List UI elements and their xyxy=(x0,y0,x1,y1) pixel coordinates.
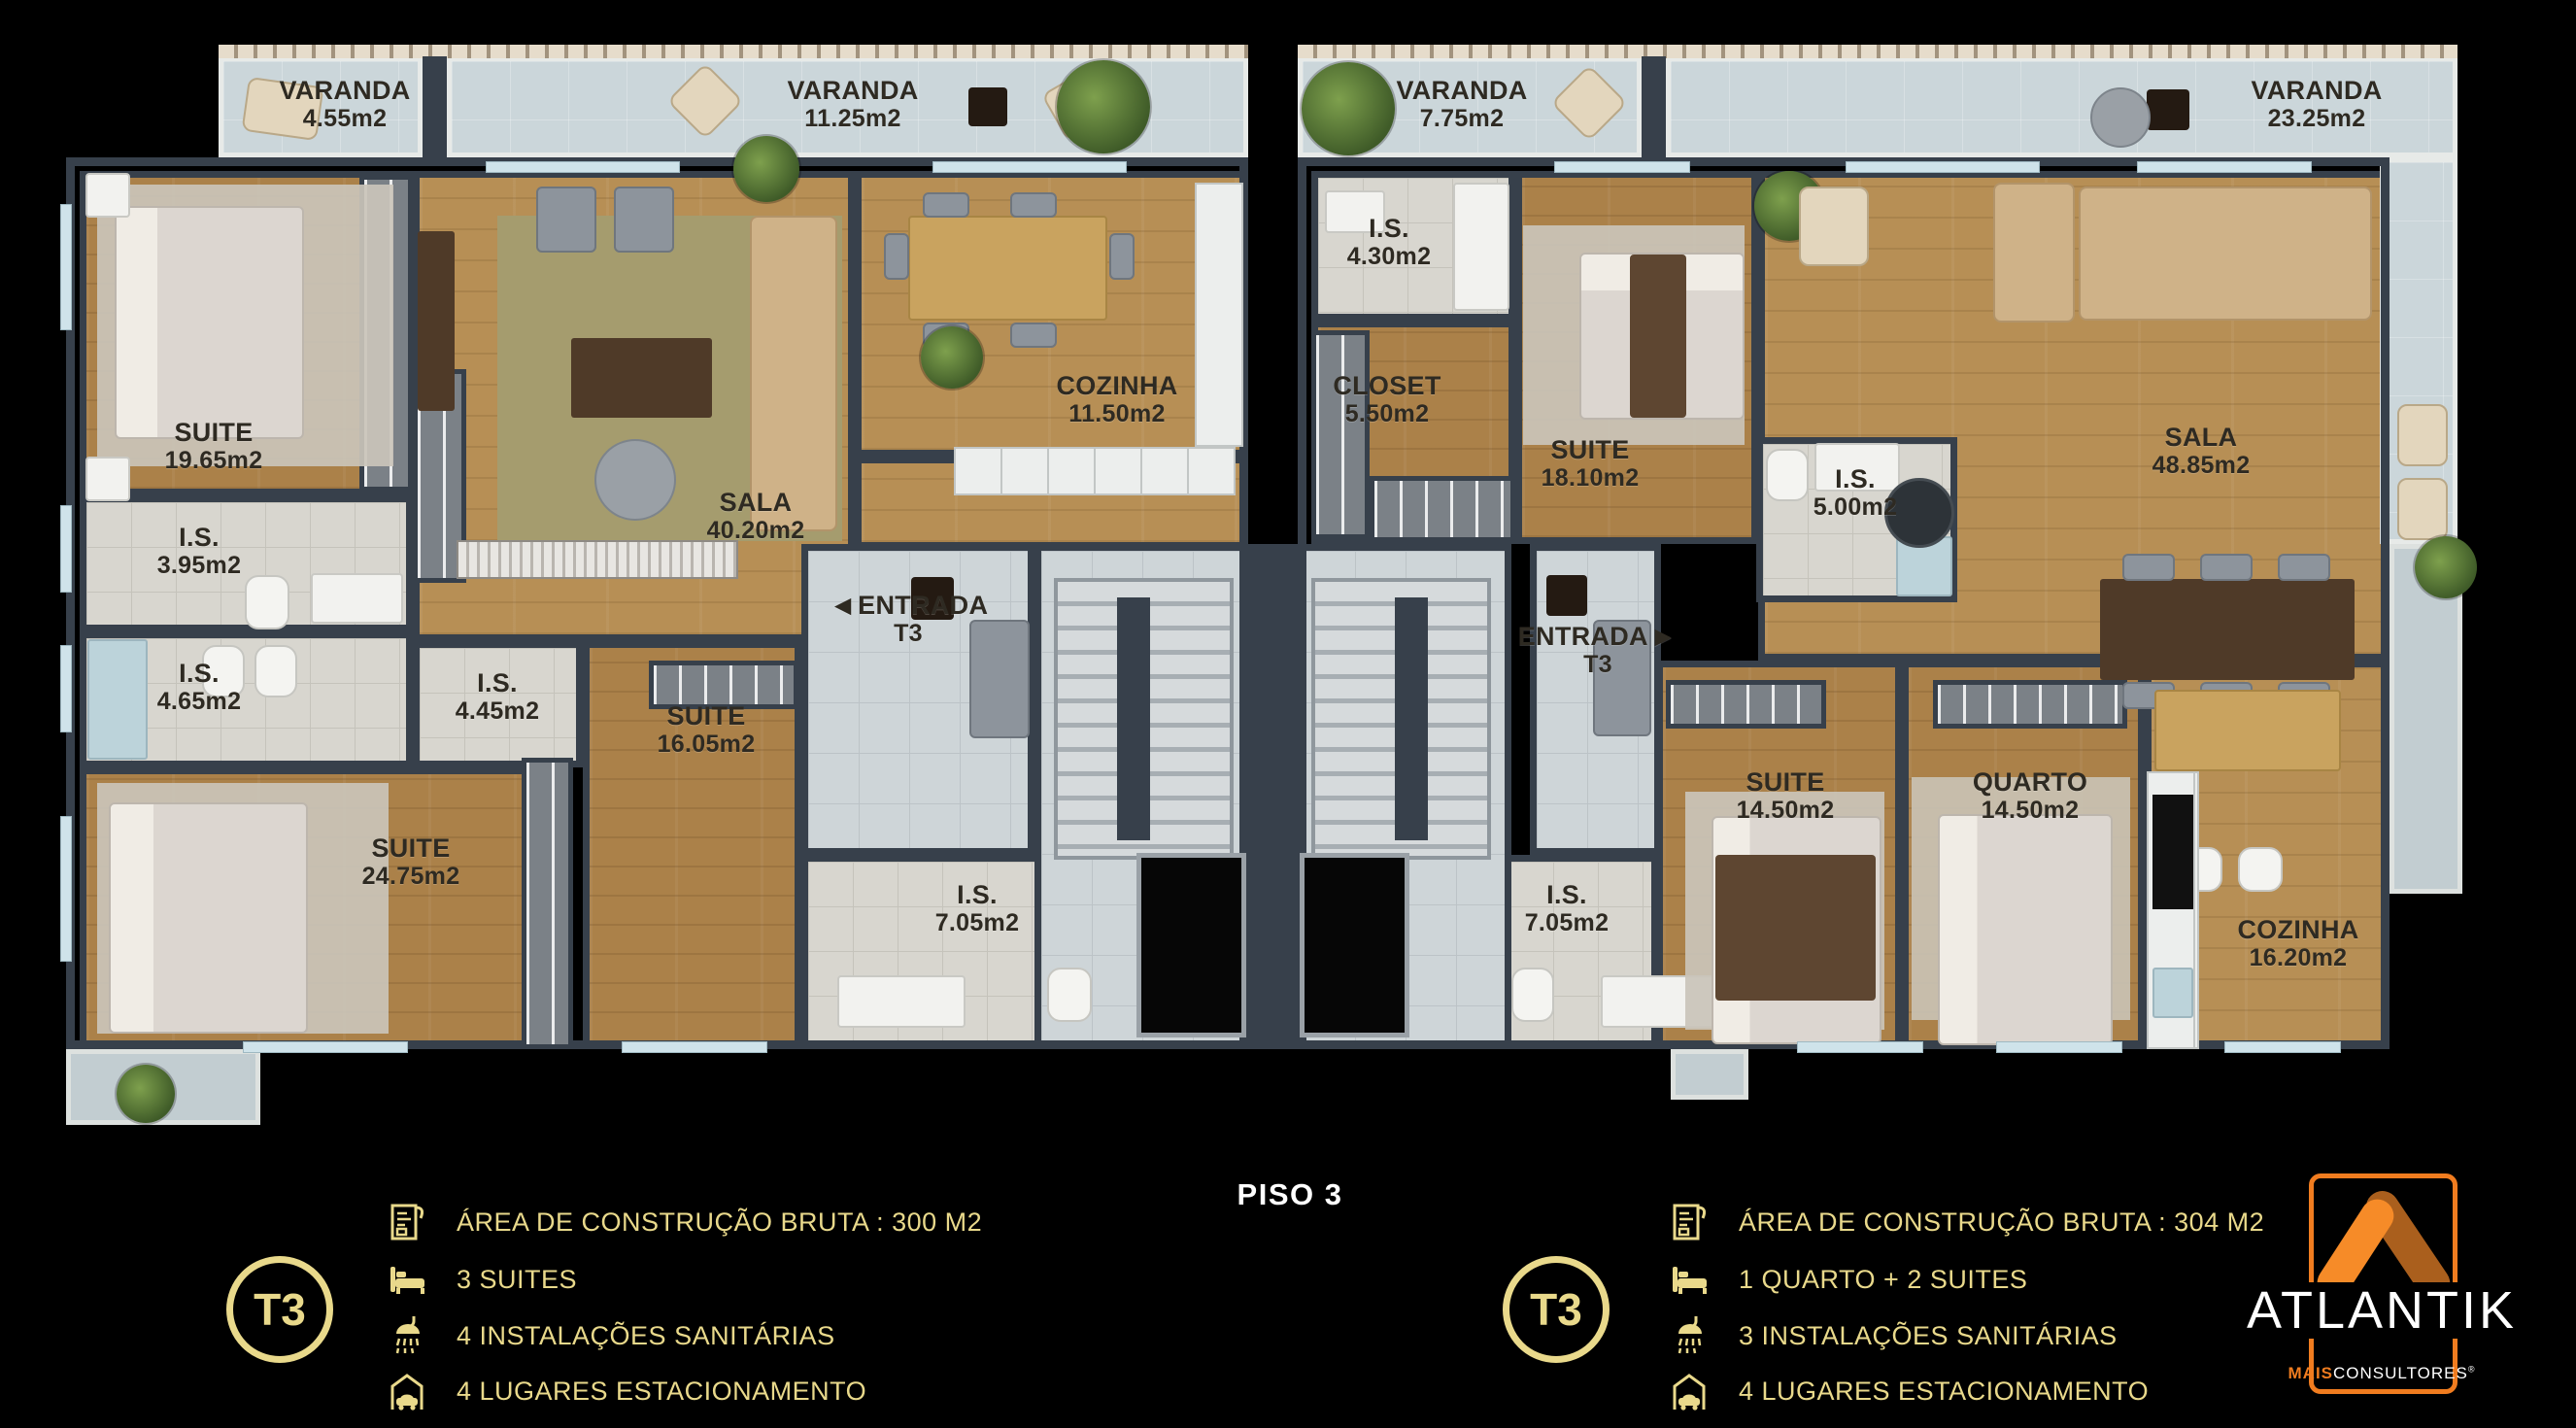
room-name: SUITE xyxy=(1746,767,1824,797)
floor-plan-icon xyxy=(385,1200,429,1244)
room-name: ENTRADA xyxy=(1518,622,1648,651)
kitchen-counter xyxy=(1195,183,1243,447)
legend-left-wc-text: 4 INSTALAÇÕES SANITÁRIAS xyxy=(457,1321,835,1351)
room-area: 23.25m2 xyxy=(2251,105,2382,132)
room-label-cozinha-1150: COZINHA11.50m2 xyxy=(1056,371,1177,427)
room-label-varanda-2325: VARANDA23.25m2 xyxy=(2251,76,2382,132)
planter xyxy=(1546,575,1587,616)
glass-door xyxy=(1846,161,2040,173)
wardrobe-corridor-left xyxy=(522,758,573,1049)
coffee-table xyxy=(571,338,712,418)
glass-door xyxy=(932,161,1127,173)
bed xyxy=(1938,814,2113,1045)
room-label-suite-1605: SUITE16.05m2 xyxy=(658,701,756,758)
nightstand xyxy=(85,173,130,218)
room-area: T3 xyxy=(1518,651,1678,678)
room-name: I.S. xyxy=(1835,464,1876,493)
deck-rail-right xyxy=(1298,45,2457,58)
room-area: 16.05m2 xyxy=(658,731,756,758)
dining-table xyxy=(908,216,1107,321)
room-area: 40.20m2 xyxy=(707,517,805,544)
entrada-arrow-icon: ▶ xyxy=(1655,626,1671,648)
bed xyxy=(109,802,308,1034)
room-area: 5.50m2 xyxy=(1333,400,1441,427)
cooktop xyxy=(2152,795,2193,909)
legend-right-item-wc: 3 INSTALAÇÕES SANITÁRIAS xyxy=(1667,1313,2118,1358)
room-name: COZINHA xyxy=(2237,915,2358,944)
glass-door xyxy=(2137,161,2312,173)
unit-badge-right: T3 xyxy=(1503,1256,1610,1363)
pouf xyxy=(594,439,676,521)
legend-right-item-area: ÁREA DE CONSTRUÇÃO BRUTA : 304 M2 xyxy=(1667,1200,2264,1244)
chaise xyxy=(1993,183,2075,323)
room-name: VARANDA xyxy=(279,76,410,105)
room-label-sala-4020: SALA40.20m2 xyxy=(707,488,805,544)
chair xyxy=(1109,233,1135,280)
armchair xyxy=(536,187,596,253)
plant xyxy=(733,136,799,202)
room-name: SUITE xyxy=(371,833,450,863)
window xyxy=(622,1041,767,1053)
glass-door xyxy=(1554,161,1690,173)
bed-icon xyxy=(1667,1257,1712,1302)
room-label-is-445: I.S.4.45m2 xyxy=(456,668,540,725)
room-label-is-705-left: I.S.7.05m2 xyxy=(935,880,1020,936)
room-name: VARANDA xyxy=(1396,76,1527,105)
room-label-is-705-right: I.S.7.05m2 xyxy=(1525,880,1610,936)
room-label-varanda-775: VARANDA7.75m2 xyxy=(1396,76,1527,132)
window xyxy=(60,816,72,962)
chair xyxy=(923,192,969,218)
bed xyxy=(115,206,304,439)
room-label-is-395: I.S.3.95m2 xyxy=(157,523,242,579)
bookshelf xyxy=(457,540,738,579)
deck-rail-left xyxy=(219,45,1248,58)
room-area: 14.50m2 xyxy=(1973,797,2087,824)
egg-chair xyxy=(2090,87,2151,148)
vanity xyxy=(311,573,403,624)
window xyxy=(1996,1041,2122,1053)
window xyxy=(60,505,72,593)
floor-plan-page: PISO 3 T3 ÁREA DE CONSTRUÇÃO BRUTA : 300… xyxy=(0,0,2576,1428)
chair xyxy=(2278,554,2330,581)
window xyxy=(60,204,72,330)
dining-table xyxy=(2100,579,2355,680)
unit-badge-left: T3 xyxy=(226,1256,333,1363)
room-area: 4.65m2 xyxy=(157,688,242,715)
legend-right-wc-text: 3 INSTALAÇÕES SANITÁRIAS xyxy=(1739,1321,2118,1351)
plant xyxy=(117,1065,175,1123)
toilet xyxy=(1766,449,1809,501)
shower-icon xyxy=(1667,1313,1712,1358)
room-name: SUITE xyxy=(174,418,253,447)
room-area: 48.85m2 xyxy=(2152,452,2251,479)
room-name: SUITE xyxy=(666,701,745,731)
legend-left-item-parking: 4 LUGARES ESTACIONAMENTO xyxy=(385,1369,866,1413)
window xyxy=(60,645,72,732)
car-garage-icon xyxy=(385,1369,429,1413)
room-name: I.S. xyxy=(179,659,220,688)
balcony-divider-right xyxy=(1642,56,1666,157)
sofa xyxy=(750,216,837,531)
legend-left-item-wc: 4 INSTALAÇÕES SANITÁRIAS xyxy=(385,1313,835,1358)
floor-plan-icon xyxy=(1667,1200,1712,1244)
legend-left-suites-text: 3 SUITES xyxy=(457,1265,577,1295)
elevator-shaft-right xyxy=(1300,853,1409,1037)
room-name: ENTRADA xyxy=(858,591,988,620)
bed-blanket xyxy=(1715,855,1876,1001)
room-area: T3 xyxy=(829,620,989,647)
kitchen-sink xyxy=(2152,968,2193,1018)
plant xyxy=(2415,536,2477,598)
legend-right-area-text: ÁREA DE CONSTRUÇÃO BRUTA : 304 M2 xyxy=(1739,1207,2264,1238)
plant xyxy=(1302,62,1395,155)
toilet xyxy=(1047,968,1092,1022)
tagline-bold: MAIS xyxy=(2288,1364,2334,1382)
bed-icon xyxy=(385,1257,429,1302)
window xyxy=(243,1041,408,1053)
wardrobe-closet-550-bottom xyxy=(1370,476,1515,542)
wardrobe-quarto-1450 xyxy=(1933,680,2127,729)
room-area: 14.50m2 xyxy=(1737,797,1835,824)
legend-left-area-text: ÁREA DE CONSTRUÇÃO BRUTA : 300 M2 xyxy=(457,1207,982,1238)
chair xyxy=(1010,323,1057,348)
legend-right-item-rooms: 1 QUARTO + 2 SUITES xyxy=(1667,1257,2027,1302)
room-area: 7.05m2 xyxy=(1525,909,1610,936)
room-name: CLOSET xyxy=(1333,371,1441,400)
room-name: SUITE xyxy=(1550,435,1629,464)
page-title: PISO 3 xyxy=(1237,1177,1343,1212)
lounge-chair xyxy=(2397,478,2448,540)
elevator-shaft-left xyxy=(1136,853,1246,1037)
chair xyxy=(884,233,909,280)
room-label-suite-1810: SUITE18.10m2 xyxy=(1542,435,1640,492)
room-area: 7.75m2 xyxy=(1396,105,1527,132)
window xyxy=(2224,1041,2341,1053)
kitchen-counter xyxy=(954,447,1236,495)
plant xyxy=(1057,60,1150,153)
toilet xyxy=(245,575,289,629)
room-area: 5.00m2 xyxy=(1813,493,1898,521)
room-area: 11.50m2 xyxy=(1056,400,1177,427)
room-label-entrada-right: ENTRADA▶T3 xyxy=(1518,622,1678,678)
room-label-closet-550: CLOSET5.50m2 xyxy=(1333,371,1441,427)
room-label-is-500: I.S.5.00m2 xyxy=(1813,464,1898,521)
legend-right-parking-text: 4 LUGARES ESTACIONAMENTO xyxy=(1739,1377,2149,1407)
wardrobe-closet-550-left xyxy=(1311,330,1370,539)
lounge-chair xyxy=(2397,404,2448,466)
atlantik-tagline: MAISCONSULTORES® xyxy=(2288,1364,2476,1383)
room-label-suite-1450: SUITE14.50m2 xyxy=(1737,767,1835,824)
room-name: SALA xyxy=(720,488,793,517)
entrada-arrow-icon: ◀ xyxy=(835,595,851,617)
armchair xyxy=(614,187,674,253)
room-name: I.S. xyxy=(477,668,518,697)
room-name: VARANDA xyxy=(787,76,918,105)
legend-right-item-parking: 4 LUGARES ESTACIONAMENTO xyxy=(1667,1369,2149,1413)
room-area: 4.55m2 xyxy=(279,105,410,132)
armchair xyxy=(1799,187,1869,266)
tv-sideboard xyxy=(418,231,455,411)
room-area: 24.75m2 xyxy=(362,863,460,890)
tagline-rest: CONSULTORES xyxy=(2333,1364,2468,1382)
room-label-quarto-1450: QUARTO14.50m2 xyxy=(1973,767,2087,824)
stair-stringer-left xyxy=(1117,597,1150,840)
room-area: 3.95m2 xyxy=(157,552,242,579)
toilet xyxy=(1511,968,1554,1022)
legend-left-item-suites: 3 SUITES xyxy=(385,1257,577,1302)
sofa xyxy=(2079,187,2372,321)
room-area: 19.65m2 xyxy=(165,447,263,474)
registered-mark: ® xyxy=(2468,1364,2476,1374)
room-label-cozinha-1620: COZINHA16.20m2 xyxy=(2237,915,2358,971)
room-label-is-465: I.S.4.65m2 xyxy=(157,659,242,715)
planter xyxy=(968,87,1007,126)
room-area: 7.05m2 xyxy=(935,909,1020,936)
legend-left-parking-text: 4 LUGARES ESTACIONAMENTO xyxy=(457,1377,866,1407)
wardrobe-suite-1450 xyxy=(1666,680,1826,729)
bed-runner xyxy=(1630,255,1686,418)
bathtub xyxy=(1453,183,1509,311)
bidet xyxy=(254,645,297,697)
chair xyxy=(1010,192,1057,218)
room-label-sala-4885: SALA48.85m2 xyxy=(2152,423,2251,479)
room-name: COZINHA xyxy=(1056,371,1177,400)
room-name: I.S. xyxy=(179,523,220,552)
stool xyxy=(2238,847,2283,892)
core-center-wall xyxy=(1241,544,1304,1049)
room-label-varanda-455: VARANDA4.55m2 xyxy=(279,76,410,132)
room-area: 4.30m2 xyxy=(1347,243,1432,270)
stair-stringer-right xyxy=(1395,597,1428,840)
room-area: 4.45m2 xyxy=(456,697,540,725)
room-label-varanda-1125: VARANDA11.25m2 xyxy=(787,76,918,132)
kitchen-island xyxy=(2154,690,2341,771)
shower xyxy=(87,639,148,760)
chair xyxy=(2122,554,2175,581)
car-garage-icon xyxy=(1667,1369,1712,1413)
chair xyxy=(2200,554,2253,581)
room-area: 11.25m2 xyxy=(787,105,918,132)
balcony-divider-left xyxy=(423,56,447,157)
room-label-suite-1965: SUITE19.65m2 xyxy=(165,418,263,474)
room-name: QUARTO xyxy=(1973,767,2087,797)
nightstand xyxy=(85,457,130,501)
legend-left-item-area: ÁREA DE CONSTRUÇÃO BRUTA : 300 M2 xyxy=(385,1200,982,1244)
window xyxy=(1797,1041,1923,1053)
glass-door xyxy=(486,161,680,173)
room-name: I.S. xyxy=(1369,214,1409,243)
legend-right-rooms-text: 1 QUARTO + 2 SUITES xyxy=(1739,1265,2027,1295)
plant xyxy=(921,326,983,389)
room-area: 16.20m2 xyxy=(2237,944,2358,971)
shower-icon xyxy=(385,1313,429,1358)
atlantik-brand-text: ATLANTIK xyxy=(2239,1282,2525,1339)
vanity xyxy=(837,975,966,1028)
room-label-entrada-left: ◀ENTRADAT3 xyxy=(829,591,989,647)
room-label-suite-2475: SUITE24.75m2 xyxy=(362,833,460,890)
patio-bottom-center xyxy=(1671,1049,1748,1100)
room-name: SALA xyxy=(2165,423,2238,452)
room-name: VARANDA xyxy=(2251,76,2382,105)
room-area: 18.10m2 xyxy=(1542,464,1640,492)
room-label-is-430: I.S.4.30m2 xyxy=(1347,214,1432,270)
planter xyxy=(2147,89,2189,130)
room-name: I.S. xyxy=(1546,880,1587,909)
room-name: I.S. xyxy=(957,880,998,909)
